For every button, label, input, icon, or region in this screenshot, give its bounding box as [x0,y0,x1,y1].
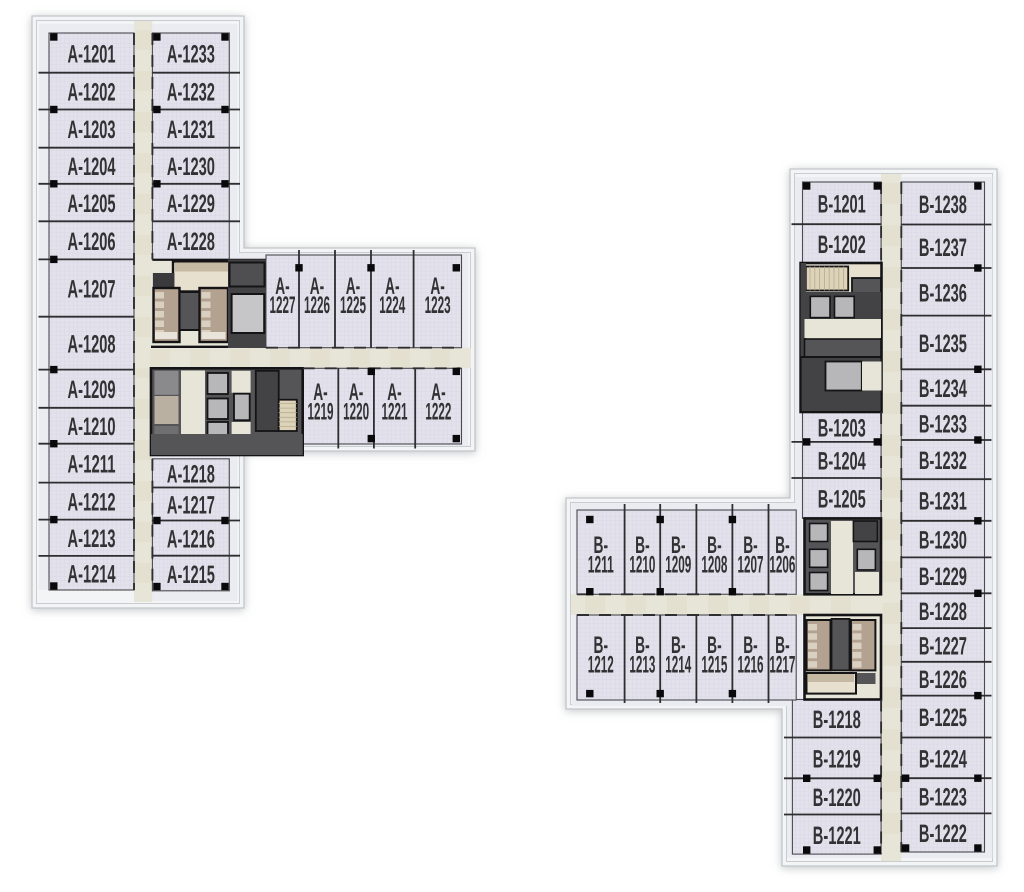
svg-text:A-1208: A-1208 [68,331,116,359]
svg-text:1209: 1209 [665,552,691,579]
svg-text:B-1233: B-1233 [919,410,967,438]
svg-text:B-1205: B-1205 [818,486,866,514]
svg-text:A-1211: A-1211 [68,451,116,479]
svg-text:1219: 1219 [308,399,334,426]
svg-text:B-1225: B-1225 [919,704,967,732]
svg-text:B-1224: B-1224 [919,745,967,773]
svg-text:B-1221: B-1221 [813,822,861,850]
svg-text:1213: 1213 [629,652,655,679]
svg-text:B-1230: B-1230 [919,527,967,555]
svg-text:A-1217: A-1217 [167,492,215,520]
svg-text:1208: 1208 [701,552,727,579]
svg-text:A-1204: A-1204 [68,153,116,181]
svg-text:A-1203: A-1203 [68,116,116,144]
svg-text:A-1231: A-1231 [167,116,215,144]
svg-text:1212: 1212 [588,652,614,679]
svg-text:1210: 1210 [629,552,655,579]
svg-text:B-1201: B-1201 [818,191,866,219]
svg-text:1207: 1207 [738,552,764,579]
svg-text:A-1207: A-1207 [68,276,116,304]
svg-text:A-1210: A-1210 [68,413,116,441]
svg-text:1215: 1215 [701,652,727,679]
svg-text:A-1218: A-1218 [167,461,215,489]
svg-text:A-1212: A-1212 [68,489,116,517]
svg-text:1206: 1206 [769,552,795,579]
svg-text:A-1213: A-1213 [68,525,116,553]
svg-text:B-1219: B-1219 [813,745,861,773]
svg-text:A-1229: A-1229 [167,190,215,218]
svg-text:B-1232: B-1232 [919,447,967,475]
svg-text:A-1230: A-1230 [167,153,215,181]
svg-text:A-1214: A-1214 [68,561,116,589]
svg-text:1211: 1211 [588,552,614,579]
svg-text:A-1205: A-1205 [68,190,116,218]
svg-text:1220: 1220 [343,399,369,426]
svg-text:A-1216: A-1216 [167,526,215,554]
svg-text:1214: 1214 [665,652,691,679]
svg-text:B-1231: B-1231 [919,488,967,516]
svg-text:B-1229: B-1229 [919,563,967,591]
svg-text:B-1228: B-1228 [919,598,967,626]
svg-text:B-1236: B-1236 [919,279,967,307]
svg-text:B-1218: B-1218 [813,706,861,734]
svg-text:1224: 1224 [379,292,405,319]
svg-text:A-1202: A-1202 [68,79,116,107]
svg-text:A-1209: A-1209 [68,376,116,404]
svg-text:1217: 1217 [769,652,795,679]
svg-text:B-1220: B-1220 [813,784,861,812]
svg-text:1225: 1225 [340,292,366,319]
svg-text:A-1228: A-1228 [167,228,215,256]
svg-text:1227: 1227 [270,292,296,319]
svg-text:B-1235: B-1235 [919,330,967,358]
svg-text:B-1223: B-1223 [919,783,967,811]
svg-text:B-1226: B-1226 [919,666,967,694]
svg-text:B-1227: B-1227 [919,633,967,661]
svg-text:A-1206: A-1206 [68,228,116,256]
svg-text:B-1204: B-1204 [818,447,866,475]
svg-text:A-1232: A-1232 [167,79,215,107]
svg-text:A-1215: A-1215 [167,561,215,589]
svg-text:A-1233: A-1233 [167,40,215,68]
svg-text:B-1203: B-1203 [818,414,866,442]
svg-text:1216: 1216 [738,652,764,679]
svg-text:B-1237: B-1237 [919,234,967,262]
svg-text:B-1234: B-1234 [919,375,967,403]
svg-text:A-1201: A-1201 [68,40,116,68]
svg-text:1223: 1223 [425,292,451,319]
svg-text:B-1222: B-1222 [919,820,967,848]
svg-text:1222: 1222 [425,399,451,426]
svg-text:B-1238: B-1238 [919,191,967,219]
svg-text:1221: 1221 [382,399,408,426]
svg-text:1226: 1226 [304,292,330,319]
svg-text:B-1202: B-1202 [818,231,866,259]
